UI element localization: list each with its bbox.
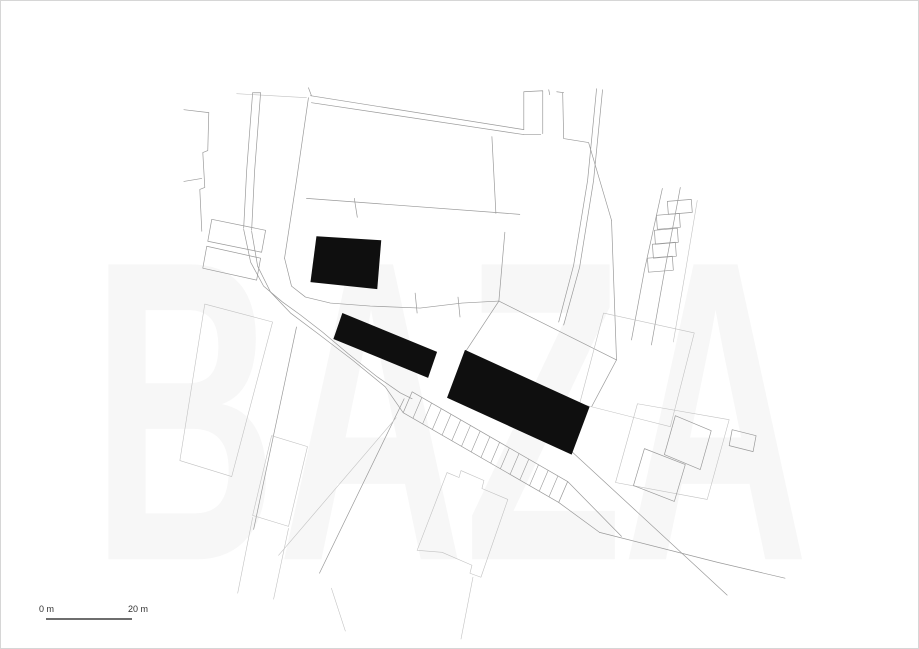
north-wall-band-bottom: [311, 103, 523, 135]
north-wall-band-top: [310, 96, 523, 130]
watermark-text: BAZA: [91, 171, 809, 648]
band-right-step: [524, 91, 543, 134]
site-plan-page: BAZA 0 m 20 m: [0, 0, 919, 649]
band-left-tick: [308, 88, 311, 96]
band-tick-2: [549, 90, 550, 95]
site-plan-svg: BAZA: [1, 1, 918, 648]
top-connector: [237, 94, 307, 98]
west-stub-1: [184, 110, 209, 113]
building-footprint-top: [310, 236, 381, 289]
